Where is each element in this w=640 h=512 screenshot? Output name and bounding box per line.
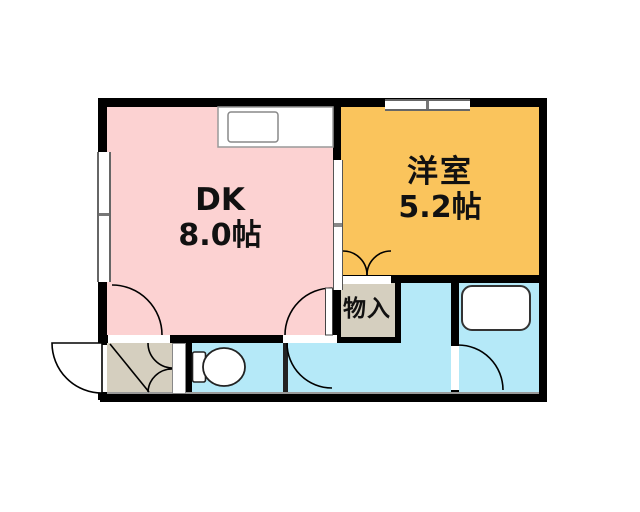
door-swing-icon-dk-left: [112, 285, 162, 335]
door-swing-icon-genkan-lower: [148, 369, 172, 392]
door-swing-icon-genkan-upper: [148, 343, 172, 368]
fixtures-overlay: [0, 0, 640, 512]
door-swing-icon-bathroom: [458, 345, 503, 390]
room-dk-size: 8.0帖: [130, 219, 310, 254]
door-swing-icon-dk-right: [285, 288, 332, 335]
door-swing-icon-closet-left: [343, 251, 367, 275]
door-swing-icon-entrance: [52, 343, 102, 393]
room-dk-label-block: DK 8.0帖: [130, 183, 310, 253]
genkan-step-line: [110, 344, 149, 392]
room-dk-label: DK: [130, 183, 310, 219]
door-swing-icon-hallway: [287, 343, 332, 388]
floorplan-canvas: DK 8.0帖 洋室 5.2帖 物入: [0, 0, 640, 512]
storage-label: 物入: [333, 296, 401, 322]
door-swing-icon-closet-right: [367, 251, 391, 275]
bathtub-icon: [462, 286, 530, 330]
room-western-size: 5.2帖: [350, 191, 530, 226]
door-leaf-dk-right: [326, 288, 333, 335]
kitchen-sink-icon: [228, 112, 278, 142]
room-western-label: 洋室: [350, 155, 530, 191]
room-western-label-block: 洋室 5.2帖: [350, 155, 530, 225]
toilet-icon: [203, 348, 245, 386]
